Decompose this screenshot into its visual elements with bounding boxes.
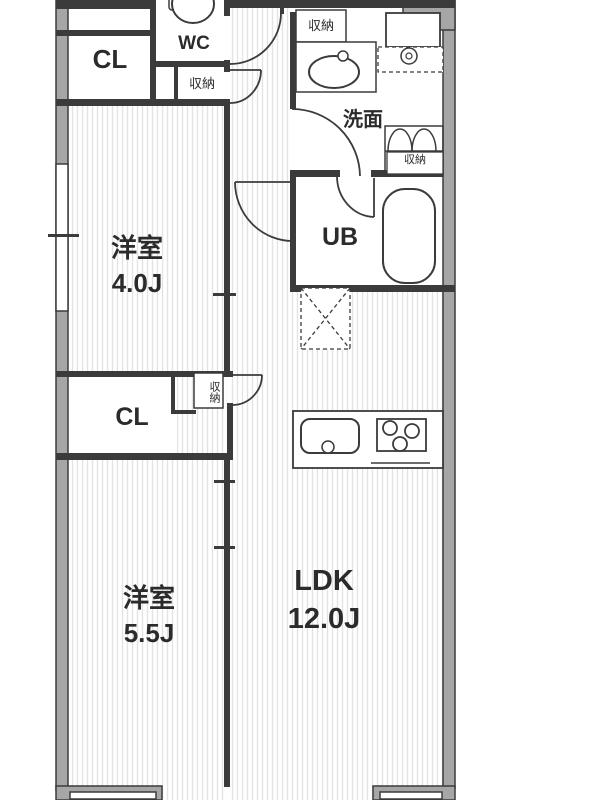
label-closet-top: CL <box>78 44 142 75</box>
label-ldk-size: 12.0J <box>252 600 396 638</box>
refrigerator-space-icon <box>301 288 350 349</box>
kitchen-counter <box>293 411 443 468</box>
toilet-icon <box>169 0 214 23</box>
label-storage-bath: 収納 <box>389 154 441 167</box>
label-storage-wc: 収納 <box>176 76 228 92</box>
wall-left <box>56 0 68 790</box>
sliding-door-tick-bedroom1 <box>213 293 236 296</box>
label-wc: WC <box>162 33 226 56</box>
label-ldk: LDK 12.0J <box>252 562 396 638</box>
label-closet-mid: CL <box>100 402 164 432</box>
stove-icon <box>377 419 426 451</box>
label-bedroom2: 洋室 5.5J <box>98 581 200 651</box>
label-washroom: 洗面 <box>325 108 401 132</box>
label-bedroom2-name: 洋室 <box>98 581 200 616</box>
label-bedroom1: 洋室 4.0J <box>86 231 188 301</box>
floorplan-page: CL WC 収納 収納 洗面 収納 UB 洋室 4.0J CL 収納 洋室 5.… <box>0 0 600 800</box>
window-mullion-tick <box>48 234 79 237</box>
label-bedroom1-name: 洋室 <box>86 231 188 266</box>
bathtub-icon <box>383 189 435 283</box>
window-bottom-right-icon <box>380 792 442 799</box>
window-bottom-left-icon <box>70 792 156 799</box>
window-left-icon <box>56 164 68 311</box>
label-ldk-name: LDK <box>252 562 396 600</box>
washer-icon <box>378 13 443 72</box>
sink-icon <box>296 42 376 92</box>
label-bedroom1-size: 4.0J <box>86 266 188 301</box>
label-storage-washroom: 収納 <box>296 18 346 34</box>
label-bedroom2-size: 5.5J <box>98 616 200 651</box>
label-storage-hall: 収納 <box>198 377 220 407</box>
sliding-door-tick-bedroom2-top <box>214 480 235 483</box>
sliding-door-tick-bedroom2-bottom <box>214 546 235 549</box>
wall-right <box>443 0 455 788</box>
floorplan-drawing <box>0 0 600 800</box>
label-unit-bath: UB <box>312 222 368 252</box>
corridor-floor <box>230 0 290 185</box>
